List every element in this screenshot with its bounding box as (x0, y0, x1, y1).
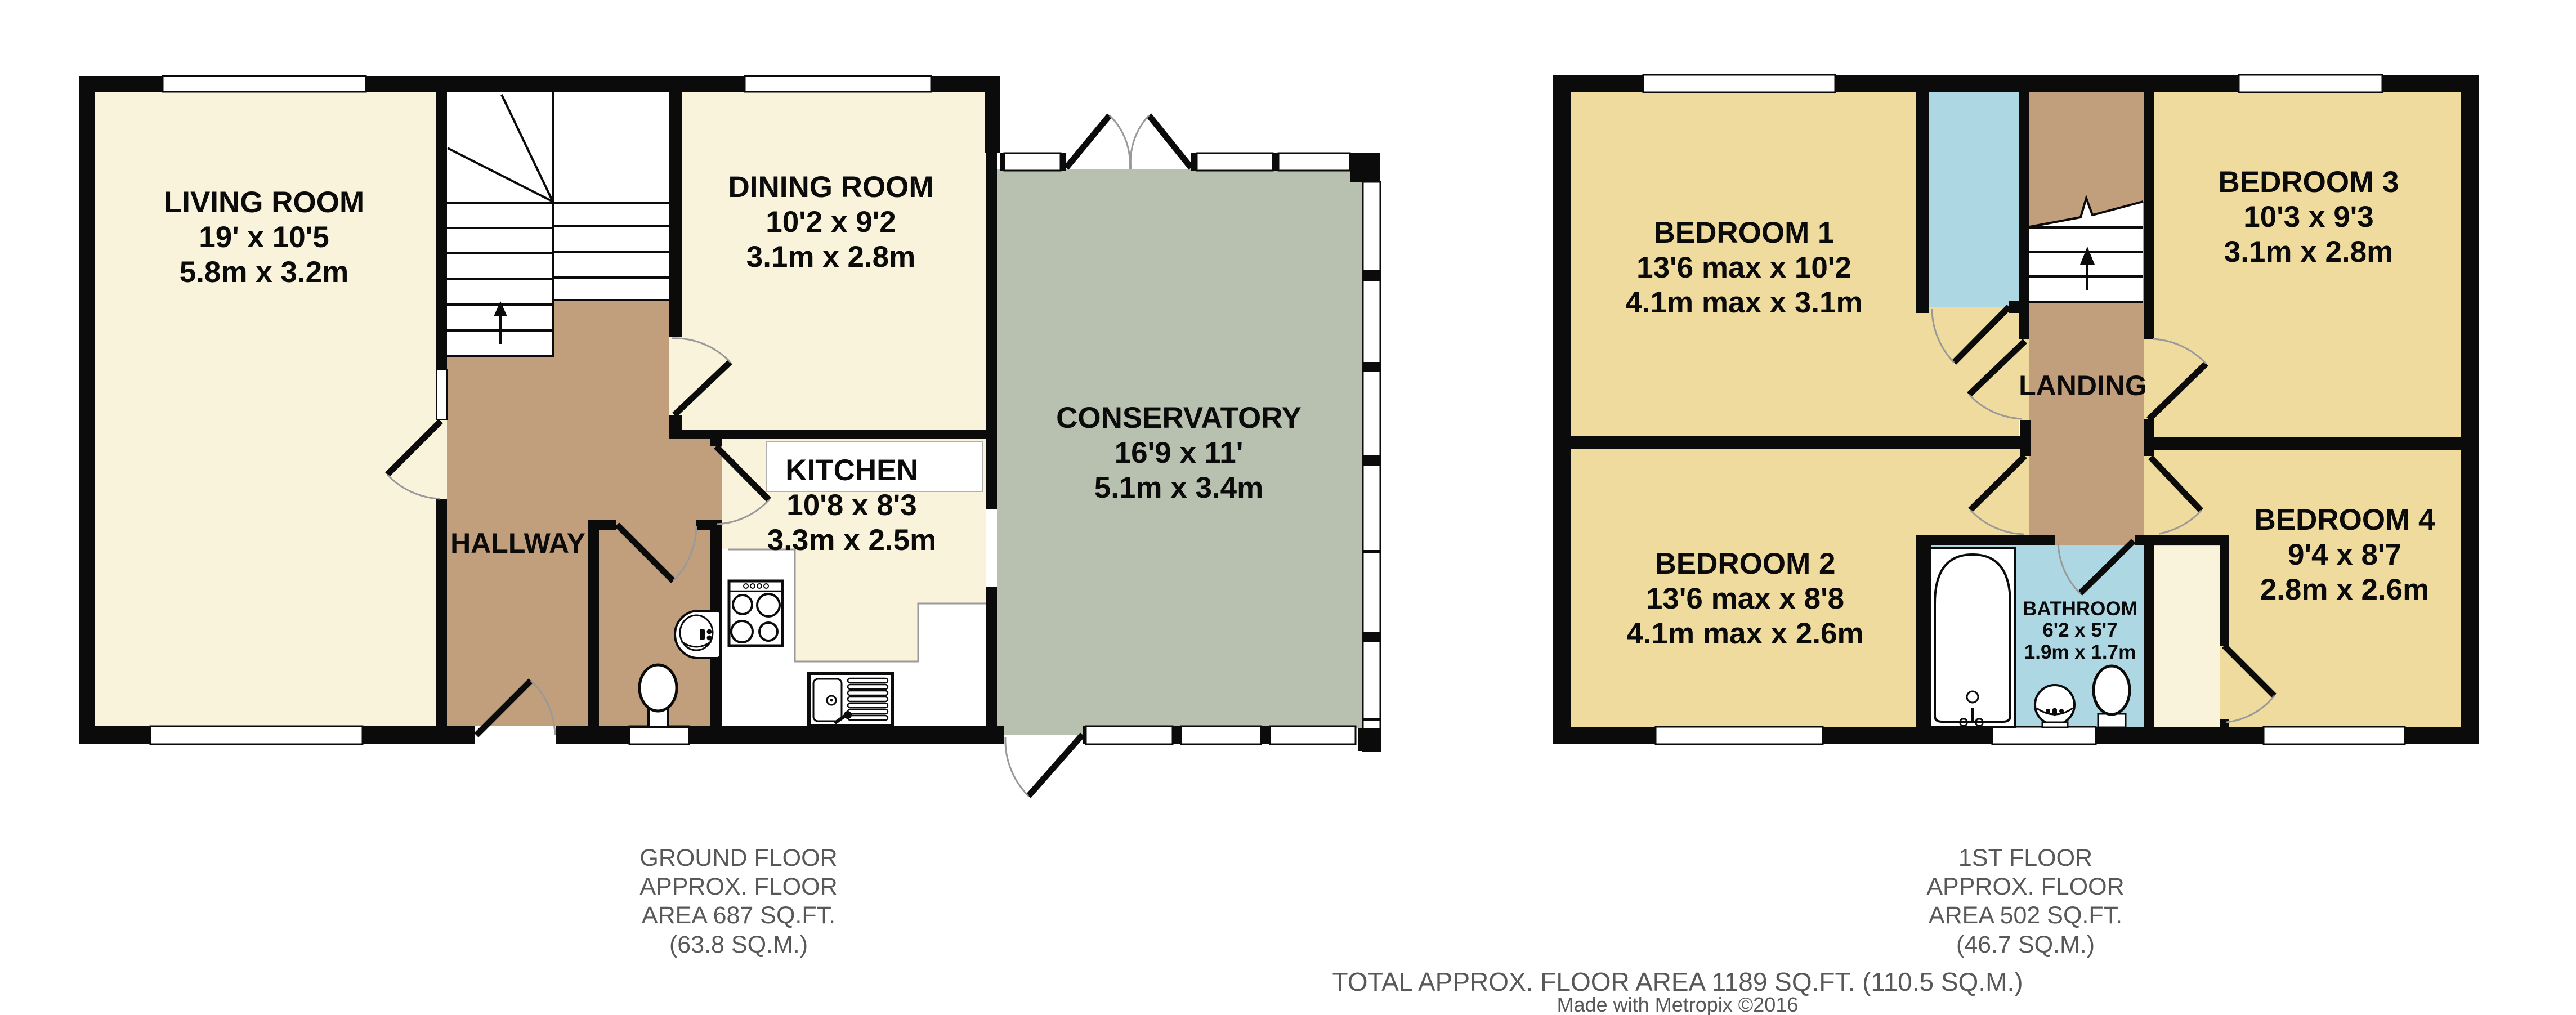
svg-text:5.1m x 3.4m: 5.1m x 3.4m (1094, 471, 1264, 504)
svg-text:13'6 max x 10'2: 13'6 max x 10'2 (1636, 251, 1851, 284)
svg-text:KITCHEN: KITCHEN (785, 454, 918, 487)
svg-text:BEDROOM 3: BEDROOM 3 (2219, 166, 2399, 199)
svg-text:AREA 502 SQ.FT.: AREA 502 SQ.FT. (1929, 902, 2122, 929)
svg-text:CONSERVATORY: CONSERVATORY (1056, 401, 1302, 435)
svg-text:LIVING ROOM: LIVING ROOM (164, 186, 364, 219)
svg-text:3.3m x 2.5m: 3.3m x 2.5m (767, 524, 937, 557)
svg-text:16'9 x 11': 16'9 x 11' (1115, 436, 1244, 470)
svg-text:4.1m max x 3.1m: 4.1m max x 3.1m (1625, 286, 1862, 319)
svg-text:10'3 x 9'3: 10'3 x 9'3 (2243, 200, 2374, 234)
svg-text:Made with Metropix ©2016: Made with Metropix ©2016 (1557, 993, 1799, 1015)
svg-text:HALLWAY: HALLWAY (450, 527, 585, 559)
svg-text:19' x 10'5: 19' x 10'5 (199, 221, 329, 254)
svg-text:2.8m x 2.6m: 2.8m x 2.6m (2260, 573, 2430, 606)
svg-text:TOTAL APPROX. FLOOR AREA 1189: TOTAL APPROX. FLOOR AREA 1189 SQ.FT. (11… (1332, 967, 2023, 996)
svg-text:(46.7 SQ.M.): (46.7 SQ.M.) (1956, 931, 2095, 958)
svg-text:AREA 687 SQ.FT.: AREA 687 SQ.FT. (642, 902, 835, 929)
svg-text:1.9m x 1.7m: 1.9m x 1.7m (2024, 641, 2136, 663)
svg-text:9'4 x 8'7: 9'4 x 8'7 (2288, 538, 2401, 571)
svg-text:BEDROOM 2: BEDROOM 2 (1655, 547, 1836, 580)
svg-text:(63.8 SQ.M.): (63.8 SQ.M.) (669, 931, 808, 958)
svg-text:4.1m max x 2.6m: 4.1m max x 2.6m (1626, 617, 1863, 650)
svg-text:BATHROOM: BATHROOM (2023, 598, 2137, 620)
svg-text:6'2 x 5'7: 6'2 x 5'7 (2042, 619, 2117, 641)
svg-text:BEDROOM 1: BEDROOM 1 (1654, 216, 1835, 249)
svg-text:10'8 x 8'3: 10'8 x 8'3 (786, 489, 917, 522)
svg-text:3.1m x 2.8m: 3.1m x 2.8m (746, 240, 916, 274)
svg-text:APPROX. FLOOR: APPROX. FLOOR (639, 873, 837, 900)
svg-text:APPROX. FLOOR: APPROX. FLOOR (1926, 873, 2124, 900)
svg-text:BEDROOM 4: BEDROOM 4 (2255, 503, 2436, 536)
svg-text:DINING ROOM: DINING ROOM (728, 171, 933, 204)
svg-text:LANDING: LANDING (2019, 370, 2147, 401)
svg-text:GROUND FLOOR: GROUND FLOOR (639, 844, 837, 871)
svg-text:1ST FLOOR: 1ST FLOOR (1958, 844, 2092, 871)
svg-text:10'2 x 9'2: 10'2 x 9'2 (766, 205, 896, 239)
svg-text:5.8m x 3.2m: 5.8m x 3.2m (180, 256, 349, 289)
svg-text:3.1m x 2.8m: 3.1m x 2.8m (2224, 235, 2394, 269)
svg-text:13'6 max x 8'8: 13'6 max x 8'8 (1646, 582, 1844, 615)
